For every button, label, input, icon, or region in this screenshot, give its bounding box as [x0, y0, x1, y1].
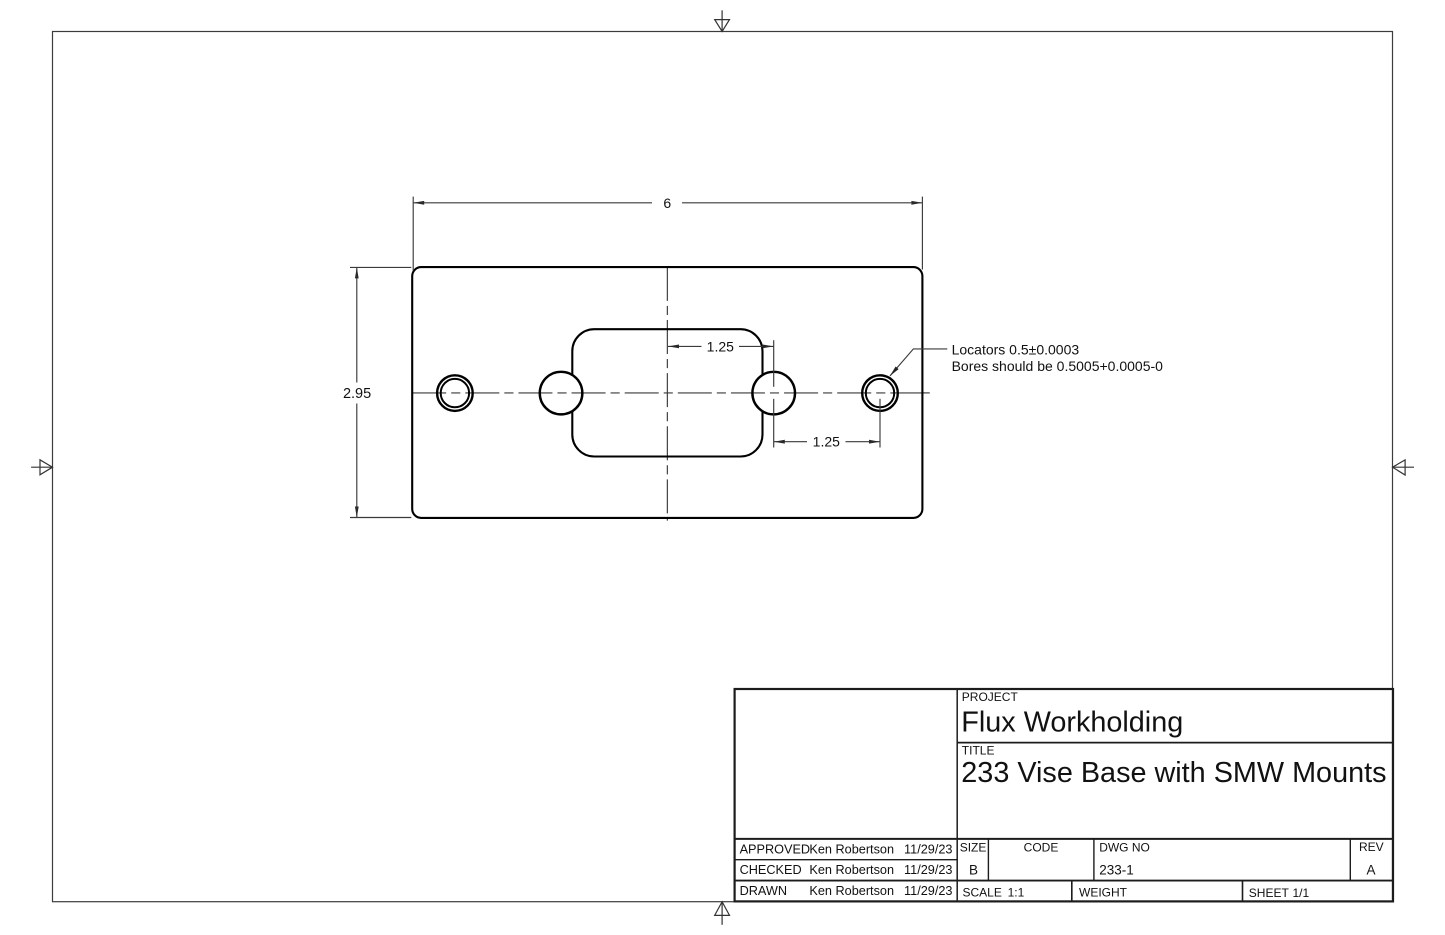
svg-text:1/1: 1/1 [1293, 886, 1310, 900]
svg-text:SHEET: SHEET [1249, 886, 1290, 900]
svg-text:11/29/23: 11/29/23 [904, 842, 952, 856]
svg-text:Ken Robertson: Ken Robertson [809, 884, 894, 898]
svg-text:PROJECT: PROJECT [962, 690, 1019, 704]
svg-text:1.25: 1.25 [813, 434, 840, 450]
svg-text:SIZE: SIZE [960, 841, 987, 855]
svg-text:DRAWN: DRAWN [740, 884, 787, 898]
svg-text:11/29/23: 11/29/23 [904, 884, 952, 898]
svg-text:Locators 0.5±0.0003: Locators 0.5±0.0003 [952, 341, 1080, 357]
svg-text:6: 6 [663, 195, 671, 211]
svg-text:Ken Robertson: Ken Robertson [809, 863, 894, 877]
svg-text:Flux Workholding: Flux Workholding [961, 706, 1183, 738]
svg-text:WEIGHT: WEIGHT [1079, 885, 1128, 899]
svg-text:TITLE: TITLE [962, 744, 995, 758]
svg-text:A: A [1366, 862, 1375, 877]
svg-text:CHECKED: CHECKED [740, 863, 802, 877]
svg-text:1.25: 1.25 [707, 338, 734, 354]
svg-text:Ken Robertson: Ken Robertson [809, 842, 894, 856]
svg-text:SCALE: SCALE [963, 885, 1002, 899]
svg-text:APPROVED: APPROVED [740, 842, 811, 856]
svg-text:233-1: 233-1 [1099, 862, 1134, 877]
svg-text:233 Vise Base with SMW Mounts: 233 Vise Base with SMW Mounts [961, 757, 1386, 789]
svg-text:B: B [969, 862, 978, 877]
svg-text:Bores should be 0.5005+0.0005-: Bores should be 0.5005+0.0005-0 [952, 358, 1164, 374]
svg-text:CODE: CODE [1024, 841, 1059, 855]
svg-text:1:1: 1:1 [1008, 885, 1025, 899]
svg-text:2.95: 2.95 [343, 386, 371, 402]
svg-text:DWG NO: DWG NO [1099, 841, 1150, 855]
svg-text:11/29/23: 11/29/23 [904, 863, 952, 877]
svg-text:REV: REV [1359, 840, 1384, 854]
